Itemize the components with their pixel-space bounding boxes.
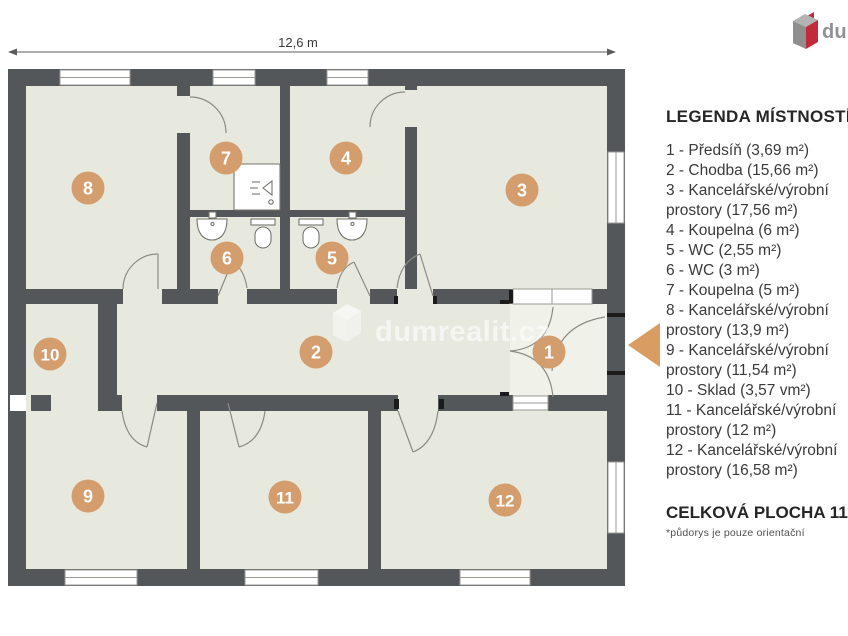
legend-item-12: 12 - Kancelářské/výrobní prostory (16,58… [666, 441, 848, 481]
svg-text:4: 4 [341, 149, 351, 169]
dumrealit-cube-icon [791, 10, 821, 54]
left-wall-notch [10, 395, 26, 411]
svg-text:1: 1 [544, 343, 554, 363]
svg-text:5: 5 [327, 249, 337, 269]
brand-logo: dumrealit.cz [791, 10, 848, 54]
dimension-label: 12,6 m [278, 35, 318, 50]
legend-item-9: 9 - Kancelářské/výrobní prostory (11,54 … [666, 341, 848, 381]
legend-item-10: 10 - Sklad (3,57 vm²) [666, 381, 848, 401]
svg-text:3: 3 [517, 181, 527, 201]
svg-text:12: 12 [496, 492, 515, 511]
legend-item-11: 11 - Kancelářské/výrobní prostory (12 m²… [666, 401, 848, 441]
legend-item-5: 5 - WC (2,55 m²) [666, 241, 848, 261]
page: dumrealit.cz 1 2 3 4 5 6 7 [0, 0, 848, 636]
room-badge-4: 4 [330, 142, 363, 175]
svg-text:7: 7 [221, 149, 231, 169]
legend-footnote: *půdorys je pouze orientační [666, 527, 805, 539]
room-badge-12: 12 [489, 484, 522, 517]
legend-item-3: 3 - Kancelářské/výrobní prostory (17,56 … [666, 181, 848, 221]
legend-item-4: 4 - Koupelna (6 m²) [666, 221, 848, 241]
shower-cabin [234, 164, 280, 210]
room-badge-2: 2 [300, 336, 333, 369]
entry-arrow-icon [628, 323, 660, 367]
room-badge-1: 1 [533, 336, 566, 369]
legend-item-2: 2 - Chodba (15,66 m²) [666, 161, 848, 181]
svg-text:11: 11 [276, 489, 294, 508]
room-badge-7: 7 [210, 142, 243, 175]
watermark-text: dumrealit.cz [375, 316, 550, 348]
svg-text:8: 8 [83, 179, 93, 199]
room-badge-5: 5 [316, 242, 349, 275]
room-badge-8: 8 [72, 172, 105, 205]
room-badge-11: 11 [269, 481, 302, 514]
dimension-line: 12,6 m [8, 35, 616, 56]
legend-item-6: 6 - WC (3 m²) [666, 261, 848, 281]
svg-text:9: 9 [83, 487, 93, 507]
svg-text:10: 10 [41, 346, 60, 365]
room-badge-6: 6 [211, 242, 244, 275]
legend-title: LEGENDA MÍSTNOSTÍ: [666, 107, 848, 127]
legend-items: 1 - Předsíň (3,69 m²) 2 - Chodba (15,66 … [666, 141, 848, 481]
brand-logo-text: dumrealit.cz [822, 21, 848, 44]
svg-text:6: 6 [222, 249, 232, 269]
svg-text:2: 2 [311, 343, 321, 363]
total-area-label: CELKOVÁ PLOCHA 111,05 m² [666, 503, 848, 523]
legend-item-8: 8 - Kancelářské/výrobní prostory (13,9 m… [666, 301, 848, 341]
legend-item-7: 7 - Koupelna (5 m²) [666, 281, 848, 301]
room-badge-9: 9 [72, 480, 105, 513]
legend-item-1: 1 - Předsíň (3,69 m²) [666, 141, 848, 161]
room-badge-3: 3 [506, 174, 539, 207]
room-badge-10: 10 [34, 338, 67, 371]
